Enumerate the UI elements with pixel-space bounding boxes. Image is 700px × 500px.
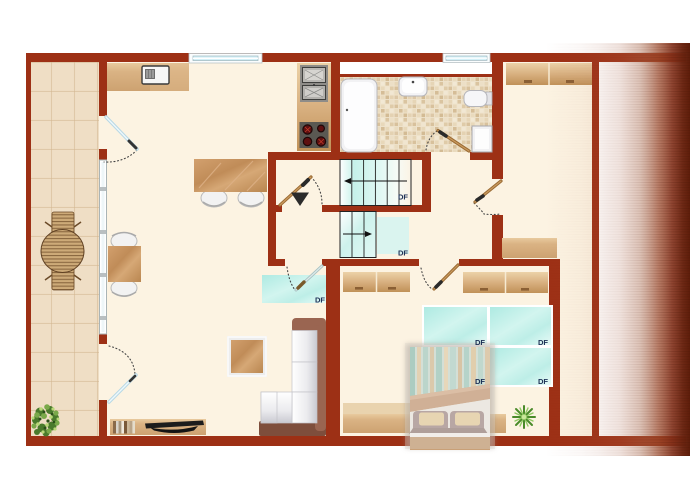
svg-text:DF: DF <box>315 296 325 305</box>
svg-text:DF: DF <box>398 193 408 202</box>
svg-text:DF: DF <box>475 377 485 386</box>
svg-text:DF: DF <box>398 249 408 258</box>
svg-text:DF: DF <box>475 338 485 347</box>
